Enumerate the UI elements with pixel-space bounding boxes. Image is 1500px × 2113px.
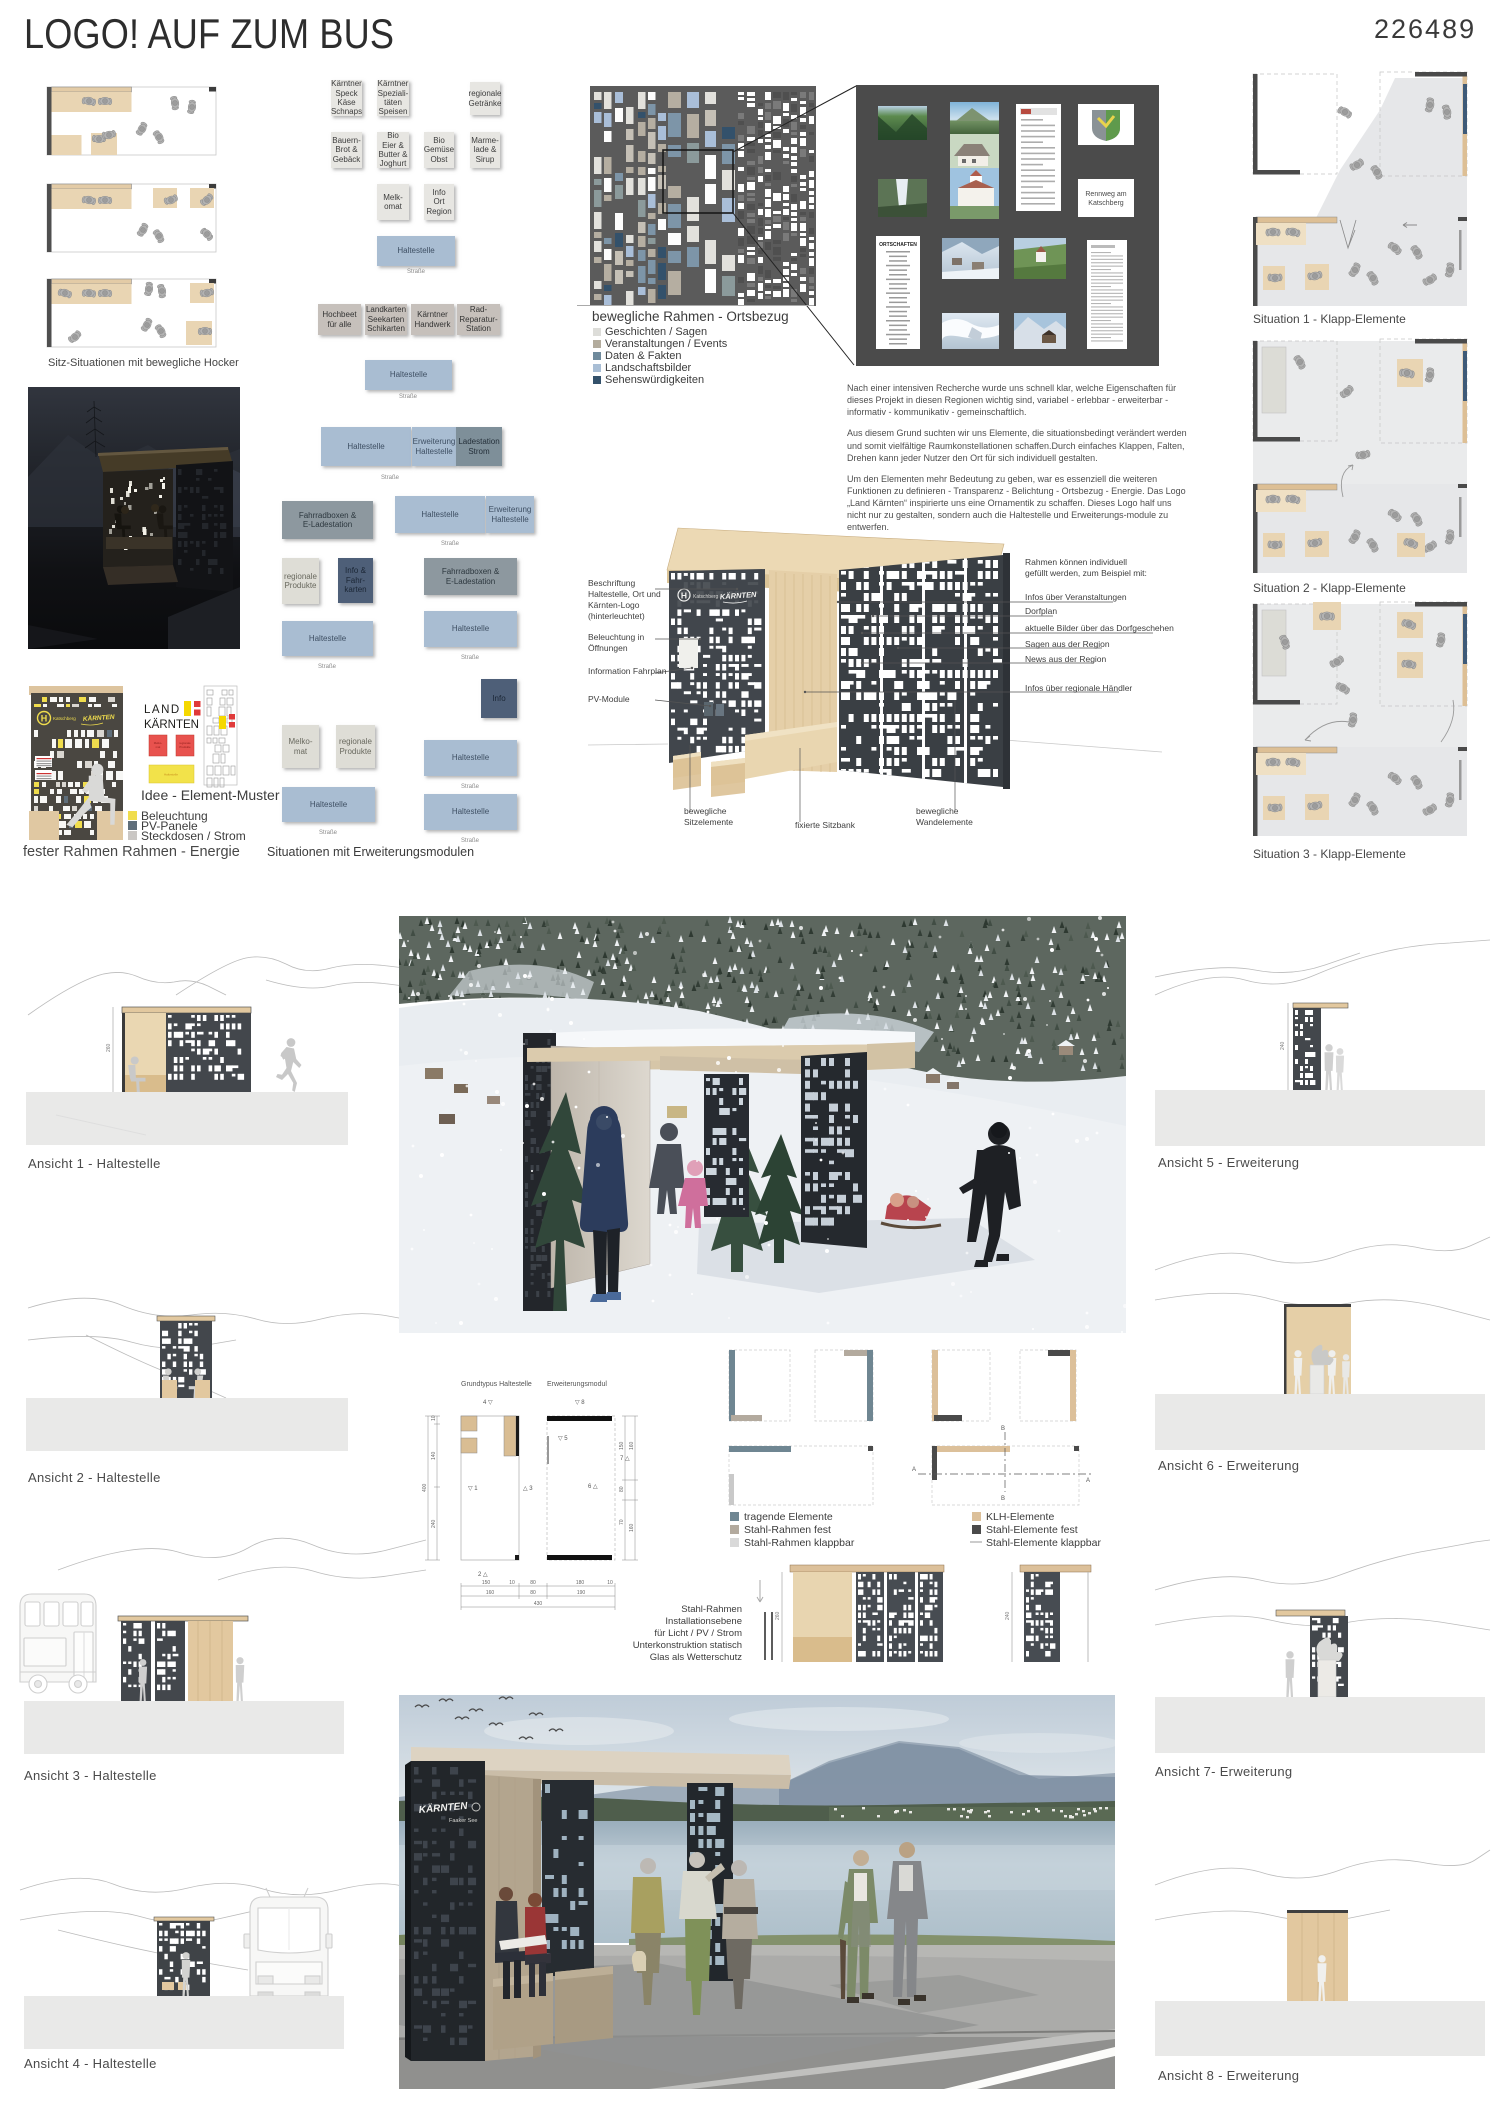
svg-text:Stahl-Elemente klappbar: Stahl-Elemente klappbar [986,1537,1101,1549]
svg-text:4 ▽: 4 ▽ [483,1400,493,1406]
svg-text:▽ 1: ▽ 1 [468,1486,478,1492]
svg-text:150: 150 [482,1580,491,1586]
svg-text:240: 240 [1280,1041,1286,1050]
svg-text:160: 160 [486,1590,495,1596]
svg-text:Katschberg: Katschberg [53,716,76,721]
svg-text:180: 180 [576,1580,585,1586]
svg-text:80: 80 [530,1590,536,1596]
svg-text:Stahl-Elemente fest: Stahl-Elemente fest [986,1524,1078,1536]
svg-text:KÄRNTEN: KÄRNTEN [144,719,199,731]
svg-text:10: 10 [509,1580,515,1586]
svg-text:70: 70 [619,1519,625,1525]
svg-text:B: B [1001,1496,1005,1502]
svg-text:240: 240 [1005,1611,1011,1620]
svg-text:160: 160 [629,1441,635,1450]
svg-text:Haltestelle: Haltestelle [164,773,178,777]
svg-text:mat: mat [156,745,161,749]
svg-text:Erweiterungsmodul: Erweiterungsmodul [547,1381,607,1388]
svg-text:400: 400 [422,1483,428,1492]
svg-text:Stahl-Rahmen klappbar: Stahl-Rahmen klappbar [744,1537,855,1549]
svg-text:80: 80 [530,1580,536,1586]
svg-text:2 △: 2 △ [478,1572,488,1578]
svg-text:Stahl-Rahmen fest: Stahl-Rahmen fest [744,1524,831,1536]
svg-text:10: 10 [431,1415,437,1421]
svg-text:KLH-Elemente: KLH-Elemente [986,1511,1054,1523]
svg-text:▽ 8: ▽ 8 [575,1400,585,1406]
svg-text:▽ 5: ▽ 5 [558,1436,568,1442]
svg-text:6 △: 6 △ [588,1484,598,1490]
svg-text:ORTSCHAFTEN: ORTSCHAFTEN [879,242,917,248]
svg-text:430: 430 [534,1601,543,1607]
svg-text:Produkte: Produkte [179,745,191,749]
svg-text:Katschberg: Katschberg [693,594,719,600]
svg-text:160: 160 [629,1523,635,1532]
svg-text:10: 10 [607,1580,613,1586]
svg-text:△ 3: △ 3 [523,1486,533,1492]
svg-text:H: H [41,714,48,724]
svg-text:A: A [1086,1478,1090,1484]
svg-text:Katschberg: Katschberg [1088,200,1124,207]
svg-text:Rennweg am: Rennweg am [1085,191,1126,198]
svg-text:140: 140 [431,1451,437,1460]
svg-text:260: 260 [106,1043,112,1052]
svg-text:80: 80 [619,1486,625,1492]
svg-text:260: 260 [775,1611,781,1620]
svg-text:240: 240 [431,1519,437,1528]
svg-text:tragende Elemente: tragende Elemente [744,1511,833,1523]
svg-text:Faaker See: Faaker See [449,1818,477,1824]
svg-text:150: 150 [619,1441,625,1450]
svg-text:B: B [1001,1426,1005,1432]
svg-text:Grundtypus Haltestelle: Grundtypus Haltestelle [461,1381,532,1388]
svg-text:190: 190 [577,1590,586,1596]
svg-text:A: A [912,1467,916,1473]
svg-text:LAND: LAND [144,704,181,716]
